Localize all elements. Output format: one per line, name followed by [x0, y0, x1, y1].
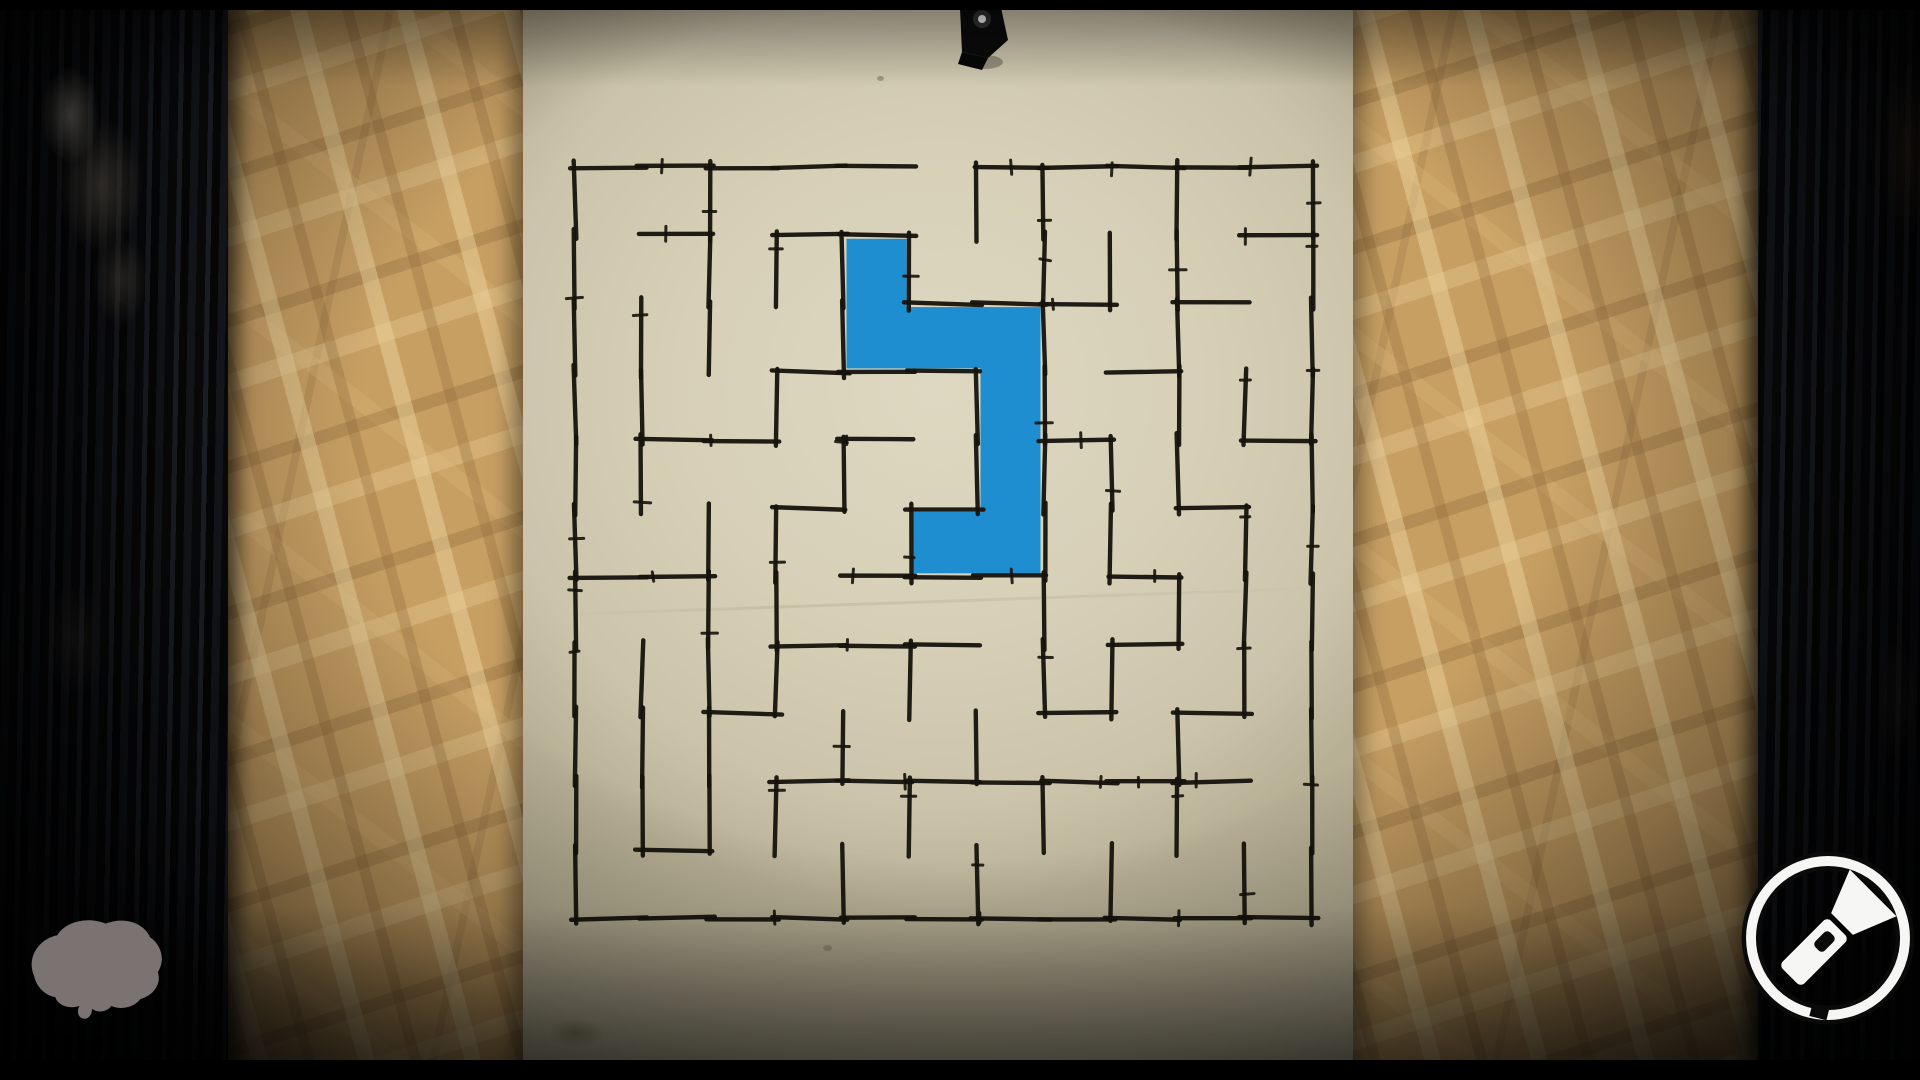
- paper-smudge: [547, 1018, 605, 1048]
- brain-icon[interactable]: [16, 914, 172, 1030]
- maze-drawing[interactable]: [540, 135, 1350, 945]
- letterbox-bottom: [0, 1060, 1920, 1080]
- letterbox-top: [0, 0, 1920, 10]
- paper-speck: [877, 76, 884, 81]
- game-viewport: [0, 0, 1920, 1080]
- push-pin-icon: [938, 0, 1024, 76]
- paper-speck: [823, 945, 832, 951]
- flashlight-button[interactable]: [1740, 850, 1916, 1026]
